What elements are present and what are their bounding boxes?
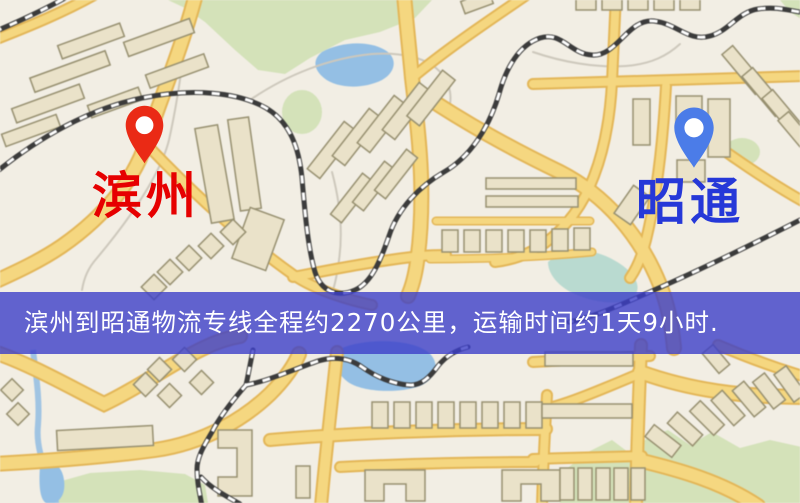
- map-canvas: [0, 0, 800, 503]
- destination-pin-icon: [667, 105, 721, 169]
- route-info-text: 滨州到昭通物流专线全程约2270公里，运输时间约1天9小时.: [24, 311, 719, 336]
- origin-city-label: 滨州: [92, 171, 200, 221]
- map-image: 滨州 昭通 滨州到昭通物流专线全程约2270公里，运输时间约1天9小时.: [0, 0, 800, 503]
- origin-pin-icon: [121, 101, 168, 167]
- destination-city-label: 昭通: [636, 177, 744, 227]
- route-info-banner: 滨州到昭通物流专线全程约2270公里，运输时间约1天9小时.: [0, 292, 800, 354]
